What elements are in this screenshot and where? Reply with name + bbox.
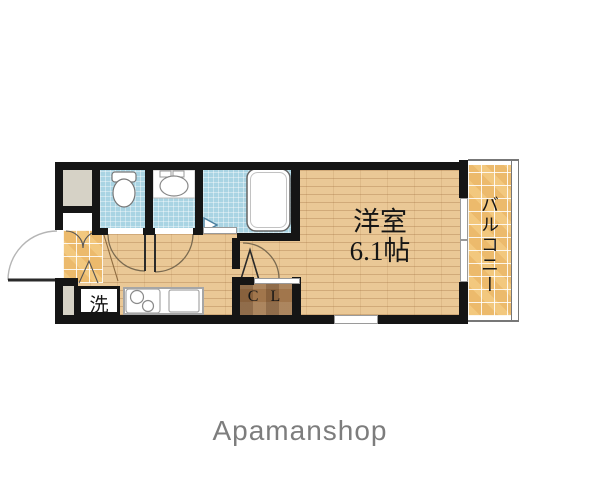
room-name: 洋室: [295, 208, 465, 237]
closet-label: C L: [240, 288, 292, 306]
alcove-gray-square: [63, 170, 92, 206]
wall-stub-mid: [143, 228, 155, 235]
washroom-floor: [153, 170, 195, 232]
closet-sliding-door: [254, 278, 300, 284]
brand-logo-text: Apamanshop: [0, 415, 600, 447]
entrance-tile-floor: [63, 230, 103, 283]
wall-toilet-left: [92, 162, 100, 232]
alcove-white-square: [63, 213, 92, 231]
toilet-room-floor: [100, 170, 145, 232]
wall-left-upper: [55, 162, 63, 230]
wall-right-lower: [459, 282, 468, 324]
wall-closet-left: [232, 284, 240, 315]
entrance-door-arc: [8, 231, 57, 280]
balcony-top-line: [468, 159, 519, 161]
wall-stub-bath: [193, 228, 203, 235]
room-size: 6.1帖: [295, 237, 465, 266]
washroom-door-threshold: [155, 228, 193, 234]
floorplan: 洋室 6.1帖 バルコニー C L 洗: [0, 0, 600, 480]
bathroom-floor: [203, 170, 291, 233]
wall-toilet-washroom: [145, 162, 153, 235]
wall-corridor: [232, 238, 240, 269]
pillar: [62, 286, 74, 315]
wall-stub-toilet: [92, 228, 108, 235]
bottom-window: [334, 315, 378, 324]
bathroom-sliding-door: [203, 227, 237, 234]
wall-right-upper: [459, 160, 468, 198]
wall-under-bathtub: [237, 233, 300, 241]
laundry-label: 洗: [78, 290, 120, 317]
wall-over-pillar: [55, 278, 78, 286]
kitchen-counter: [123, 287, 204, 315]
room-label: 洋室 6.1帖: [295, 208, 465, 266]
toilet-door-threshold: [108, 228, 143, 234]
balcony-label: バルコニー: [476, 184, 502, 306]
balcony-bottom-line: [468, 320, 519, 322]
wall-washroom-bathroom: [195, 162, 203, 235]
wall-top: [55, 162, 468, 170]
wall-under-alcove: [55, 206, 92, 213]
balcony-railing: [511, 159, 519, 321]
